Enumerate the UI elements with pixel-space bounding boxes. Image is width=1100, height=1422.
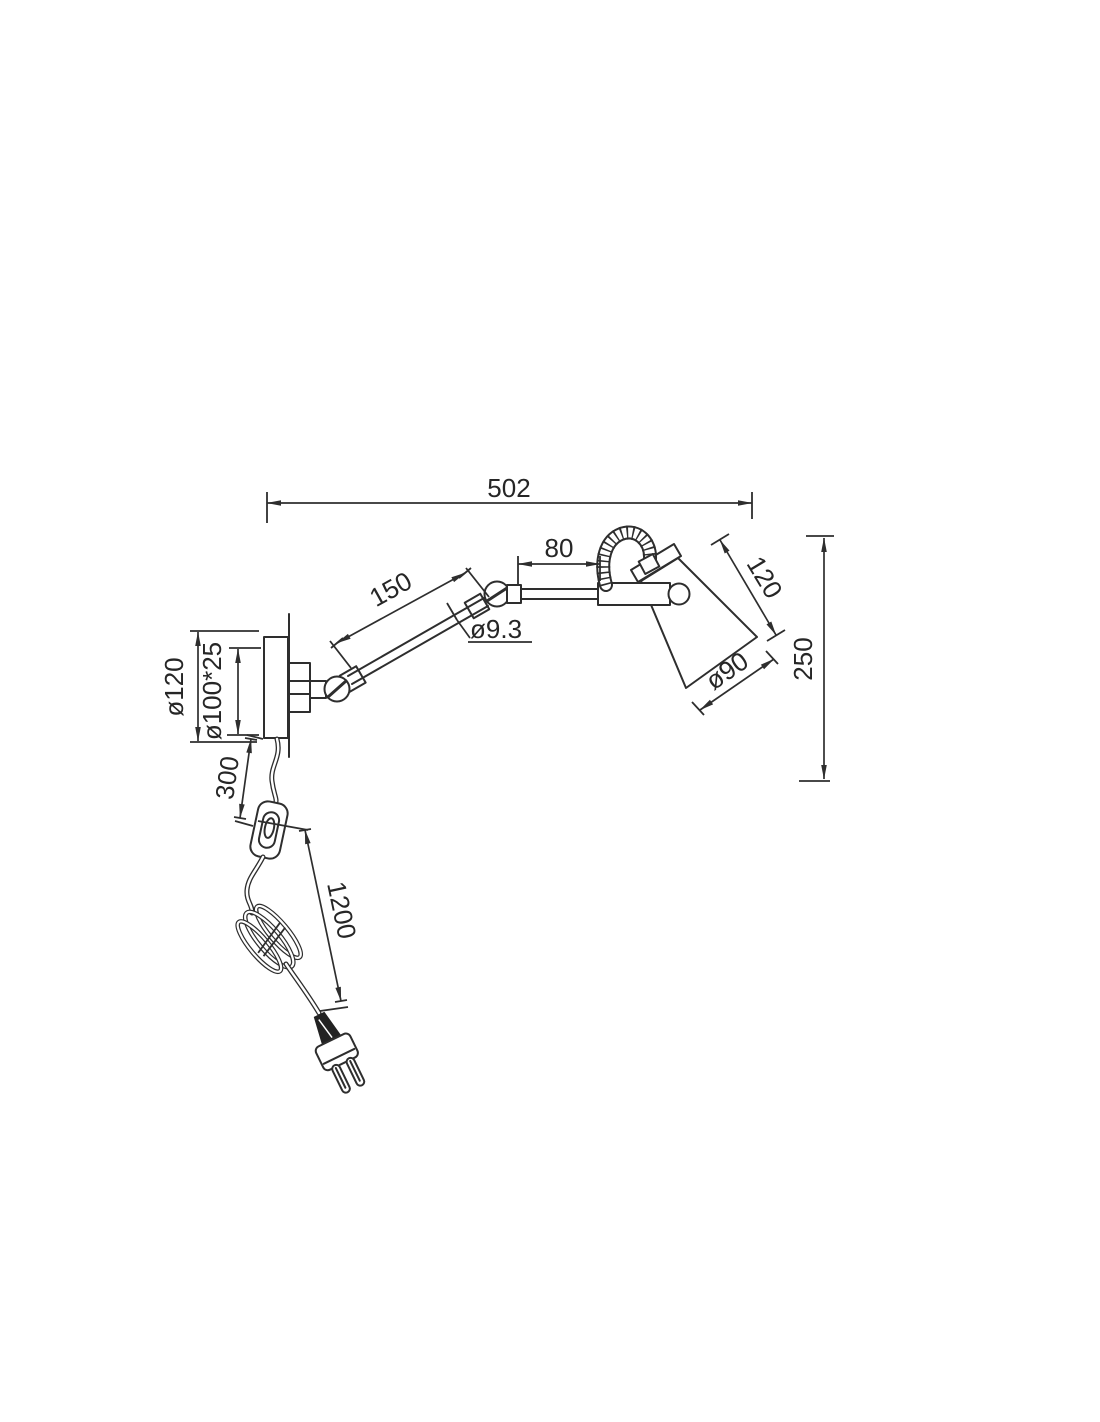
wall-plate	[264, 637, 288, 738]
dim-label-arm-tube-diameter: ø9.3	[470, 614, 522, 644]
wall-bracket	[289, 663, 326, 712]
rear-arm-tube	[348, 598, 488, 684]
dim-label-overall-width: 502	[487, 473, 530, 503]
cord-lower	[286, 964, 319, 1013]
technical-drawing: 502 80 150 ø9.3 120 ø90 250	[0, 0, 1100, 1422]
dim-label-overall-height: 250	[788, 637, 818, 680]
cord-upper	[272, 739, 278, 806]
dim-overall-width: 502	[267, 473, 752, 523]
dim-wall-plate-body: ø100*25	[197, 642, 261, 740]
arm-end-knob	[669, 584, 690, 605]
dim-overall-height: 250	[788, 536, 834, 781]
dim-label-shade-side: 120	[741, 551, 789, 604]
dim-label-cord-to-switch: 300	[209, 754, 245, 801]
upper-pivot-screw	[485, 582, 510, 607]
power-plug	[302, 1007, 372, 1097]
cable-coil	[231, 899, 308, 980]
dim-front-arm: 80	[518, 533, 600, 584]
dim-rear-arm: 150	[330, 565, 489, 668]
dim-cord-to-switch: 300	[209, 735, 263, 826]
dim-label-front-arm: 80	[545, 533, 574, 563]
front-arm	[507, 583, 690, 605]
lamp-dimension-diagram: 502 80 150 ø9.3 120 ø90 250	[0, 0, 1100, 1422]
dim-label-wall-plate-diameter: ø120	[159, 657, 189, 716]
inline-switch	[249, 799, 290, 860]
dim-label-rear-arm: 150	[364, 565, 416, 612]
dim-label-wall-plate-body: ø100*25	[197, 642, 227, 740]
lower-pivot-screw	[325, 677, 350, 702]
